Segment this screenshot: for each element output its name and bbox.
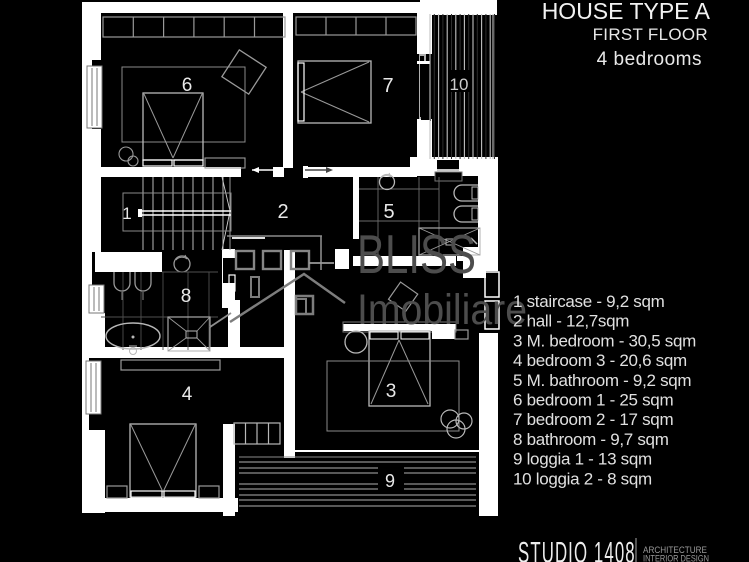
svg-text:9: 9: [385, 471, 395, 491]
svg-text:2: 2: [277, 201, 288, 223]
svg-text:6: 6: [182, 75, 193, 96]
svg-text:9 loggia 1 - 13 sqm: 9 loggia 1 - 13 sqm: [513, 450, 652, 469]
svg-text:1 staircase - 9,2 sqm: 1 staircase - 9,2 sqm: [513, 292, 665, 311]
svg-text:Imobiliare: Imobiliare: [357, 286, 527, 334]
svg-text:FIRST FLOOR: FIRST FLOOR: [593, 25, 708, 44]
svg-text:4 bedrooms: 4 bedrooms: [597, 49, 702, 70]
svg-text:6 bedroom 1 - 25 sqm: 6 bedroom 1 - 25 sqm: [513, 391, 673, 410]
svg-text:5 M. bathroom - 9,2 sqm: 5 M. bathroom - 9,2 sqm: [513, 371, 691, 390]
svg-text:4: 4: [182, 384, 193, 405]
svg-text:HOUSE TYPE A: HOUSE TYPE A: [542, 0, 711, 24]
svg-text:BLISS: BLISS: [357, 223, 476, 285]
svg-text:3 M. bedroom - 30,5 sqm: 3 M. bedroom - 30,5 sqm: [513, 331, 696, 350]
svg-text:8: 8: [181, 286, 192, 307]
svg-text:STUDIO 1408: STUDIO 1408: [518, 537, 636, 562]
svg-text:7 bedroom 2 - 17 sqm: 7 bedroom 2 - 17 sqm: [513, 410, 673, 429]
svg-text:1: 1: [122, 204, 131, 223]
svg-text:10 loggia 2 - 8 sqm: 10 loggia 2 - 8 sqm: [513, 469, 652, 488]
svg-text:INTERIOR DESIGN: INTERIOR DESIGN: [643, 554, 709, 562]
svg-text:5: 5: [383, 201, 394, 223]
svg-text:2 hall - 12,7sqm: 2 hall - 12,7sqm: [513, 312, 629, 331]
svg-text:10: 10: [450, 75, 469, 94]
svg-text:4 bedroom 3 - 20,6 sqm: 4 bedroom 3 - 20,6 sqm: [513, 351, 687, 370]
svg-text:8 bathroom - 9,7 sqm: 8 bathroom - 9,7 sqm: [513, 430, 669, 449]
svg-text:7: 7: [382, 75, 393, 97]
svg-text:3: 3: [386, 381, 397, 402]
